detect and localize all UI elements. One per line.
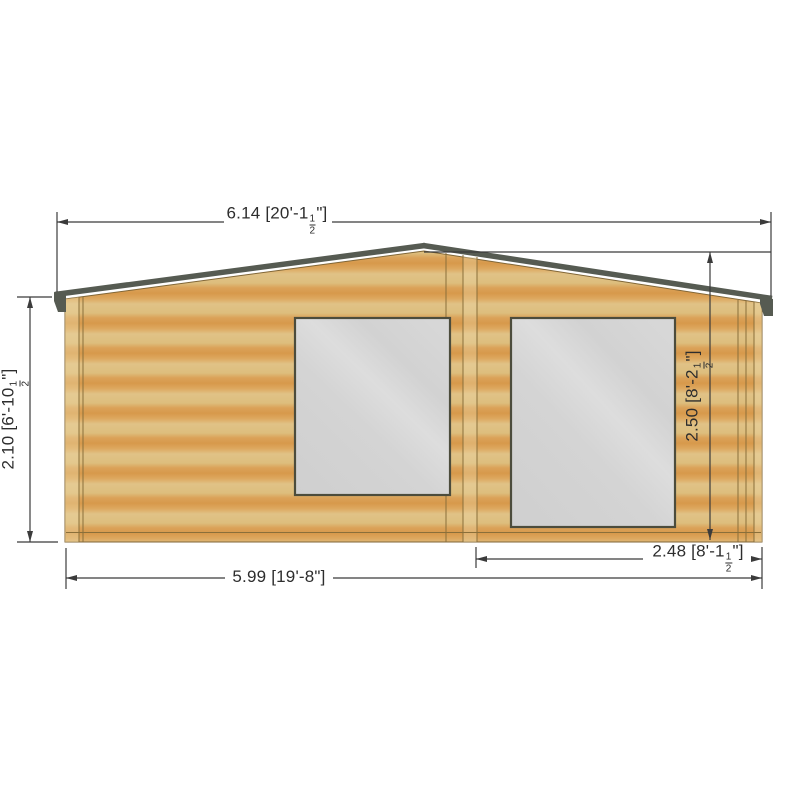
elevation-drawing-canvas: 6.14 [20'-112"] 2.10 [6'-1012"] 2.50 [8'… [0, 0, 800, 800]
dimension-label-bottom-right-width: 2.48 [8'-112"] [652, 542, 743, 575]
cabin-elevation-svg [0, 0, 800, 800]
corner-trim-right [754, 302, 762, 542]
right-window [511, 318, 675, 527]
left-window [295, 318, 450, 495]
dimension-label-bottom-width: 5.99 [19'-8"] [232, 567, 325, 587]
wall-joint-strip [463, 257, 477, 542]
dimension-label-right-height: 2.50 [8'-212"] [683, 350, 716, 441]
dimension-label-left-height: 2.10 [6'-1012"] [0, 369, 32, 470]
corner-trim-left [65, 297, 79, 542]
dimension-label-top-width: 6.14 [20'-112"] [227, 204, 328, 237]
roof-left-end-cap [54, 292, 66, 312]
